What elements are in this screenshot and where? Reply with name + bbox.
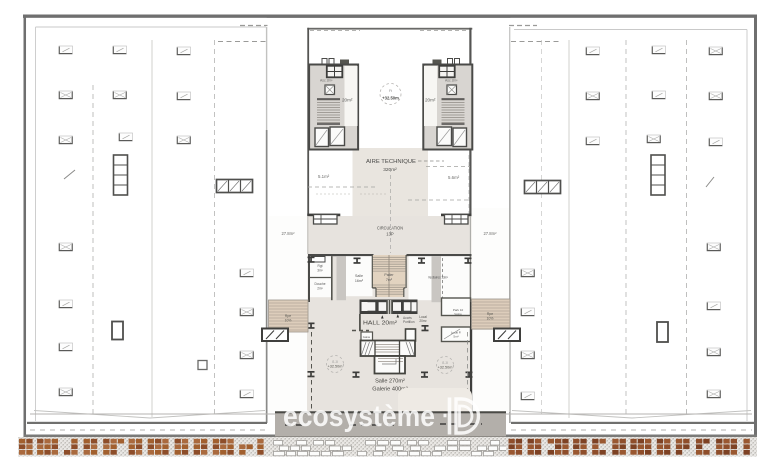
svg-text:Douche: Douche xyxy=(315,282,326,286)
svg-text:Salle: Salle xyxy=(355,274,363,278)
svg-text:2m²: 2m² xyxy=(317,287,323,291)
svg-text:5.1m²: 5.1m² xyxy=(318,174,330,179)
svg-text:Asc 2m²: Asc 2m² xyxy=(320,79,333,83)
svg-text:+32.50m: +32.50m xyxy=(438,366,453,370)
svg-text:3m²: 3m² xyxy=(317,269,323,273)
svg-text:+32.50m: +32.50m xyxy=(328,365,343,369)
svg-text:20m²: 20m² xyxy=(425,98,436,103)
svg-text:7m²: 7m² xyxy=(386,278,393,282)
svg-text:10%: 10% xyxy=(487,317,494,321)
svg-text:HALL 20m²: HALL 20m² xyxy=(363,321,397,327)
svg-text:Asc 2m²: Asc 2m² xyxy=(445,79,458,83)
svg-text:Portillon: Portillon xyxy=(403,320,415,324)
svg-text:Palier: Palier xyxy=(384,273,394,277)
svg-text:Ft: Ft xyxy=(389,89,392,93)
svg-text:Rpe: Rpe xyxy=(285,314,291,318)
svg-text:16m²: 16m² xyxy=(355,279,364,283)
svg-text:+32.50m: +32.50m xyxy=(382,96,399,101)
svg-text:5m²: 5m² xyxy=(453,335,458,339)
svg-text:Gaine: Gaine xyxy=(363,335,371,339)
svg-text:(1.1): (1.1) xyxy=(442,361,448,365)
svg-text:ecosystème: ecosystème xyxy=(283,400,435,433)
svg-text:27.8m²: 27.8m² xyxy=(483,231,497,236)
svg-text:20m²: 20m² xyxy=(342,98,353,103)
svg-text:20m²: 20m² xyxy=(419,319,426,323)
svg-text:Vestiaires 13m²: Vestiaires 13m² xyxy=(428,276,448,280)
svg-text:10%: 10% xyxy=(285,319,292,323)
svg-text:CIRCULATION: CIRCULATION xyxy=(377,226,403,231)
svg-text:Salle 270m²: Salle 270m² xyxy=(375,379,405,385)
svg-text:Vélos: Vélos xyxy=(454,312,462,316)
svg-text:Rpe: Rpe xyxy=(487,312,493,316)
svg-text:27.8m²: 27.8m² xyxy=(281,231,295,236)
svg-text:5.6m²: 5.6m² xyxy=(448,175,460,180)
svg-text:(1.1): (1.1) xyxy=(332,360,338,364)
svg-text:13P: 13P xyxy=(386,232,394,237)
svg-text:AIRE TECHNIQUE: AIRE TECHNIQUE xyxy=(366,159,416,165)
svg-text:Rgt: Rgt xyxy=(318,264,323,268)
